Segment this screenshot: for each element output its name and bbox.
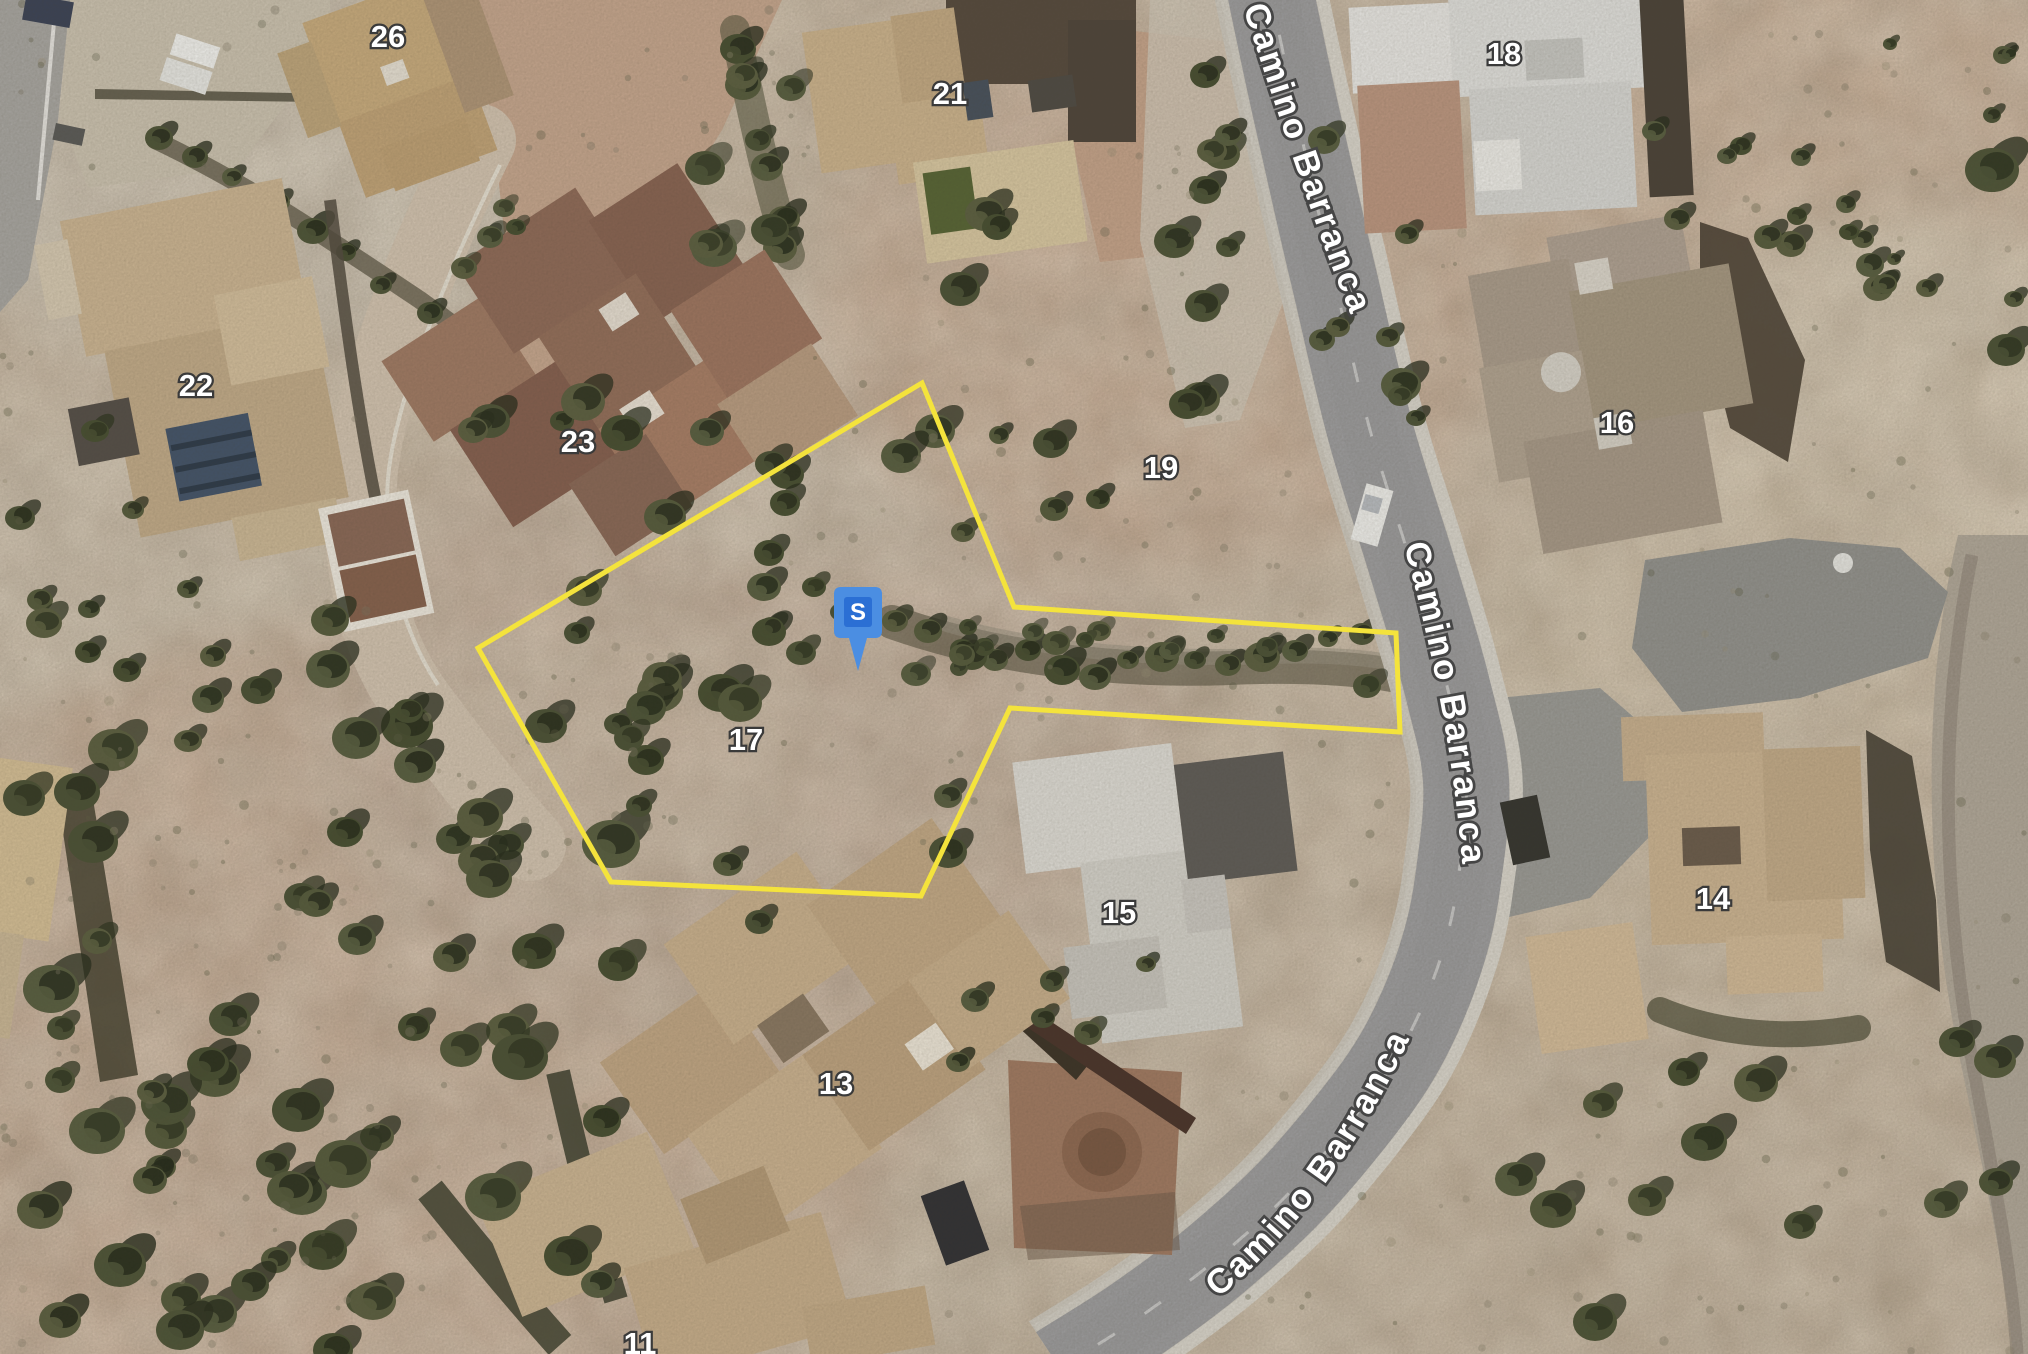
svg-text:13: 13 [819, 1066, 853, 1101]
svg-text:11: 11 [624, 1326, 657, 1354]
svg-text:18: 18 [1487, 36, 1521, 71]
svg-text:15: 15 [1102, 895, 1136, 930]
svg-text:23: 23 [561, 424, 595, 459]
svg-text:21: 21 [933, 76, 967, 111]
svg-text:26: 26 [371, 19, 405, 54]
svg-text:19: 19 [1144, 450, 1178, 485]
svg-text:S: S [850, 599, 866, 626]
svg-text:17: 17 [729, 722, 763, 757]
svg-text:16: 16 [1600, 405, 1634, 440]
svg-text:22: 22 [179, 368, 213, 403]
svg-text:14: 14 [1696, 881, 1731, 916]
